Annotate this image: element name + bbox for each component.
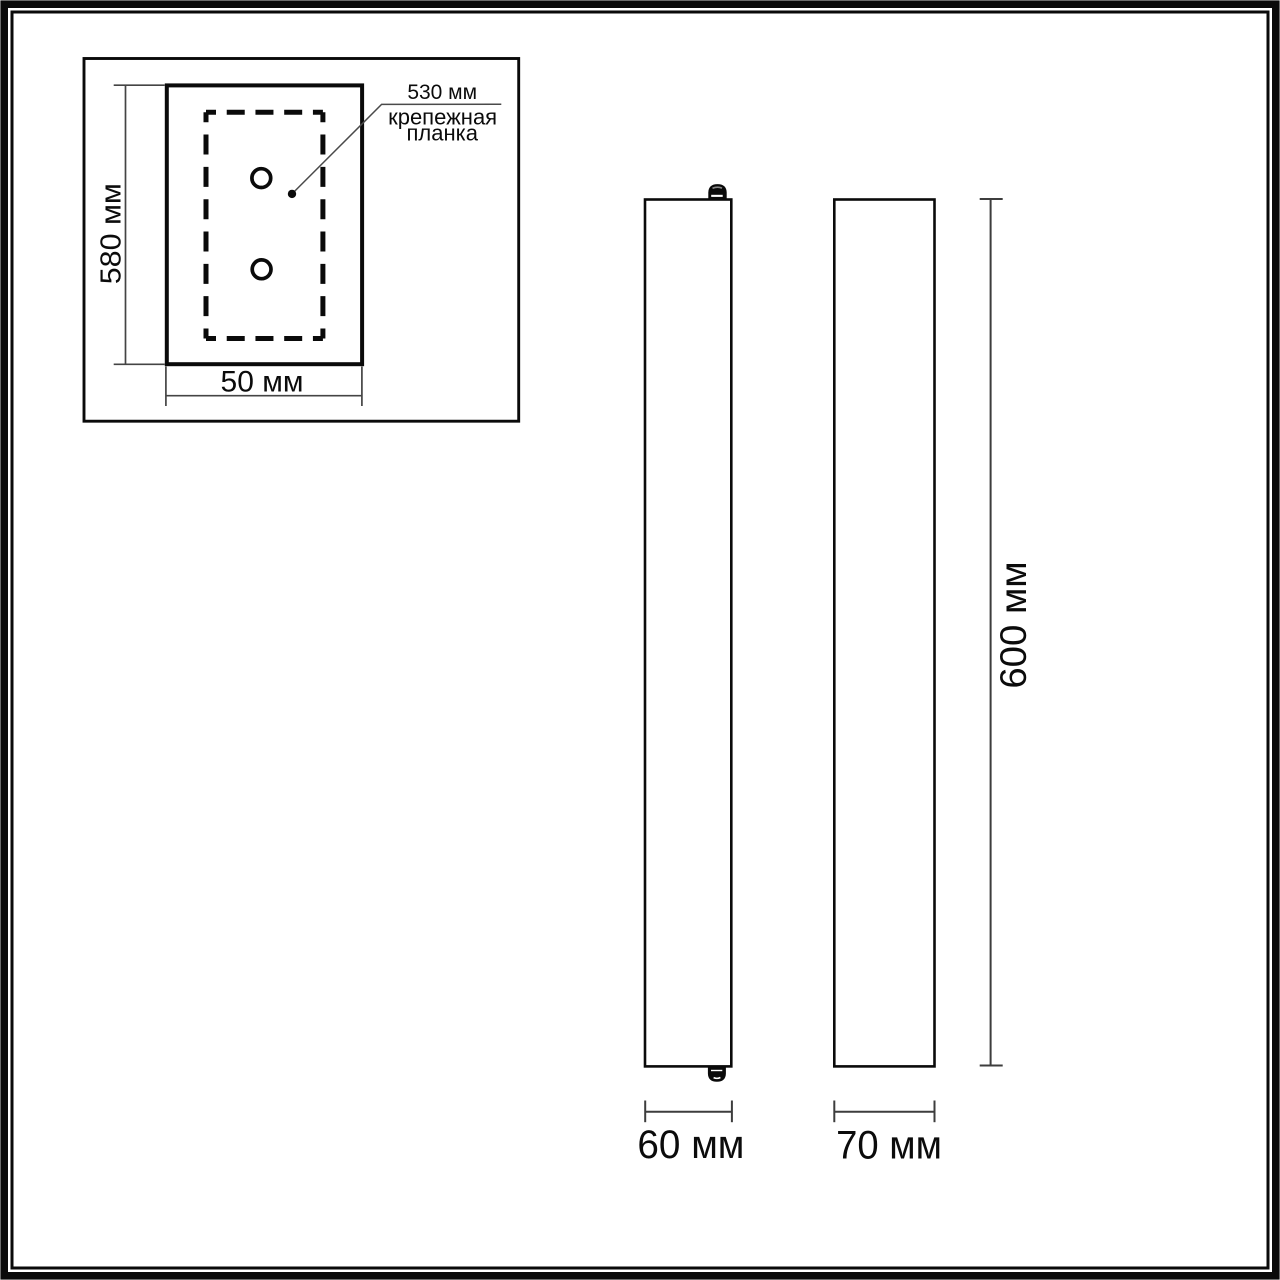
- svg-text:планка: планка: [406, 121, 478, 146]
- svg-text:50 мм: 50 мм: [221, 365, 304, 398]
- svg-text:70 мм: 70 мм: [836, 1124, 942, 1168]
- svg-text:580 мм: 580 мм: [95, 183, 127, 284]
- svg-text:600 мм: 600 мм: [992, 561, 1033, 688]
- svg-text:60 мм: 60 мм: [637, 1123, 744, 1168]
- svg-text:530 мм: 530 мм: [407, 81, 477, 104]
